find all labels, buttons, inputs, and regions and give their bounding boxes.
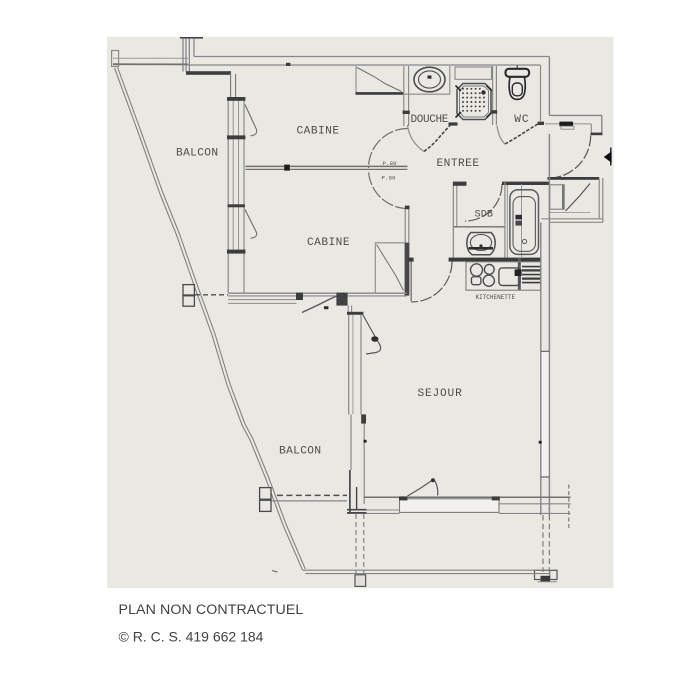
svg-text:KITCHENETTE: KITCHENETTE <box>476 294 516 301</box>
svg-text:BALCON: BALCON <box>279 446 321 458</box>
svg-text:P.80: P.80 <box>382 175 397 182</box>
svg-text:ENTREE: ENTREE <box>437 158 480 170</box>
svg-text:© R. C. S. 419 662 184: © R. C. S. 419 662 184 <box>119 629 264 645</box>
svg-text:PLAN NON CONTRACTUEL: PLAN NON CONTRACTUEL <box>119 602 304 618</box>
svg-text:CABINE: CABINE <box>297 126 340 138</box>
svg-text:SDB: SDB <box>475 210 494 221</box>
svg-text:DOUCHE: DOUCHE <box>411 114 449 126</box>
svg-text:P.80: P.80 <box>383 160 398 167</box>
svg-text:SEJOUR: SEJOUR <box>418 388 463 400</box>
svg-text:WC: WC <box>514 114 529 126</box>
svg-text:BALCON: BALCON <box>176 148 218 160</box>
svg-text:CABINE: CABINE <box>307 237 350 249</box>
